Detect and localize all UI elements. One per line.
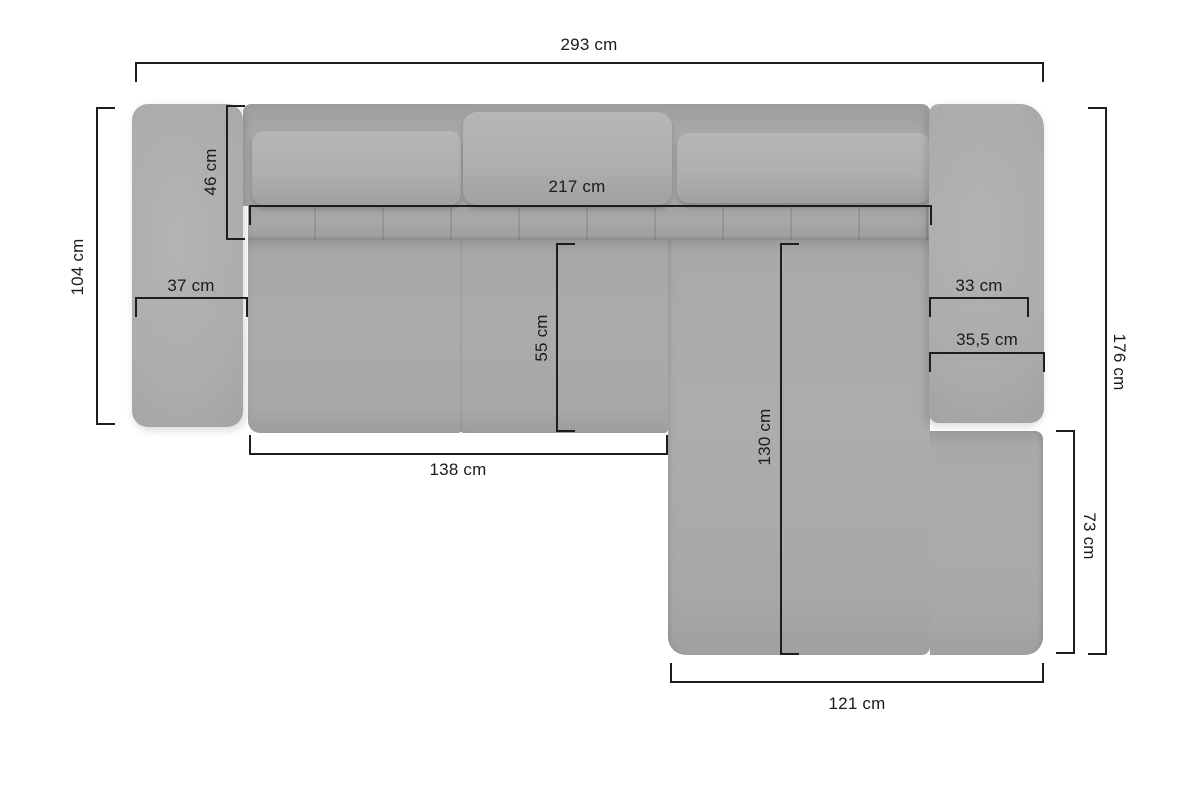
dimension-label: 138 cm xyxy=(430,460,487,480)
dimension-label: 35,5 cm xyxy=(956,330,1018,350)
back-pillow-left xyxy=(252,131,461,205)
dimension-label: 37 cm xyxy=(167,276,214,296)
seat-back-band xyxy=(248,205,930,241)
dimension-line xyxy=(556,243,558,432)
dimension-label: 55 cm xyxy=(532,314,552,361)
dimension-line xyxy=(135,62,1044,64)
dimension-line xyxy=(929,297,1029,299)
dimension-line xyxy=(135,297,248,299)
dimension-label: 33 cm xyxy=(955,276,1002,296)
dimension-line xyxy=(780,243,782,655)
dimension-label: 293 cm xyxy=(561,35,618,55)
dimension-line xyxy=(670,681,1044,683)
dimension-line xyxy=(1073,430,1075,654)
seat-cushion-right xyxy=(460,240,668,433)
dimension-label: 46 cm xyxy=(201,148,221,195)
right-armrest xyxy=(929,104,1044,423)
dimension-line xyxy=(96,107,98,425)
dimension-label: 176 cm xyxy=(1109,334,1129,391)
chaise-section xyxy=(668,240,930,655)
seat-cushion-left xyxy=(248,240,462,433)
dimension-label: 73 cm xyxy=(1079,512,1099,559)
chaise-section-right xyxy=(930,431,1043,655)
dimension-line xyxy=(226,105,228,240)
dimension-line xyxy=(1105,107,1107,655)
dimension-line xyxy=(249,453,668,455)
dimension-line xyxy=(929,352,1045,354)
dimension-label: 121 cm xyxy=(829,694,886,714)
back-pillow-right xyxy=(677,133,930,203)
dimension-label: 130 cm xyxy=(755,409,775,466)
dimension-label: 217 cm xyxy=(549,177,606,197)
dimension-line xyxy=(249,205,932,207)
sofa-dimension-diagram: 293 cm 104 cm 46 cm 217 cm 37 cm 33 cm 3… xyxy=(0,0,1200,801)
dimension-label: 104 cm xyxy=(68,239,88,296)
